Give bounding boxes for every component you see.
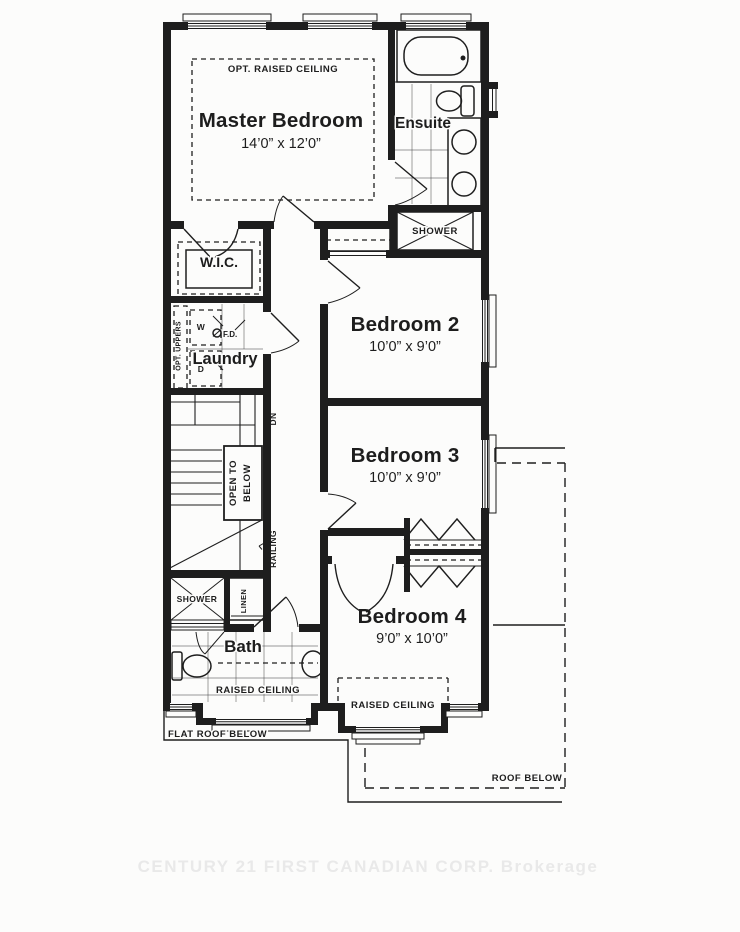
label-bedroom-4-dims: 9’0” x 10’0” [376, 631, 448, 647]
bathtub [397, 30, 481, 82]
label-washer: W [197, 322, 206, 332]
bath-toilet [172, 652, 211, 680]
label-bath-shower: SHOWER [177, 594, 218, 604]
ensuite-fixtures [395, 30, 481, 250]
label-dn: DN [268, 412, 278, 425]
label-master-bedroom: Master Bedroom [199, 109, 364, 132]
bed2-closet [326, 228, 390, 256]
label-bath-raised-ceiling: RAISED CEILING [216, 685, 300, 696]
laundry-fixtures [174, 304, 263, 388]
label-bedroom-4: Bedroom 4 [358, 605, 467, 628]
floor-plan-page: OPT. RAISED CEILING Master Bedroom 14’0”… [0, 0, 740, 932]
washer [190, 310, 221, 345]
labels: OPT. RAISED CEILING Master Bedroom 14’0”… [138, 64, 599, 876]
laundry-door [271, 313, 299, 353]
ensuite-tile-grid [395, 84, 448, 204]
closet-bifold-bed3 [404, 519, 481, 545]
closet-bifold-bed4 [404, 560, 481, 587]
label-railing: RAILING [268, 530, 278, 568]
ensuite-vanity [448, 118, 481, 206]
floor-plan-drawing: OPT. RAISED CEILING Master Bedroom 14’0”… [0, 0, 740, 932]
stair-diagonal [168, 520, 262, 569]
label-opt-raised-ceiling: OPT. RAISED CEILING [228, 64, 338, 75]
label-bedroom-3-dims: 10’0” x 9’0” [369, 470, 441, 486]
bedroom3-door [328, 494, 356, 529]
ensuite-door [395, 162, 427, 205]
ensuite-toilet [437, 86, 475, 116]
bedroom2-door [328, 261, 360, 303]
bath-door [254, 597, 298, 627]
label-bedroom-3: Bedroom 3 [351, 444, 460, 467]
watermark: CENTURY 21 FIRST CANADIAN CORP. Brokerag… [138, 857, 599, 876]
label-opt-uppers: OPT. UPPERS [176, 321, 183, 371]
label-floor-drain: F.D. [223, 330, 237, 339]
label-ensuite-shower: SHOWER [412, 226, 458, 237]
label-ensuite: Ensuite [395, 115, 451, 132]
laundry-counter-lines [188, 304, 263, 388]
floor-drain-symbol [213, 329, 221, 337]
label-master-dims: 14’0” x 12’0” [241, 136, 321, 152]
label-bedroom-2-dims: 10’0” x 9’0” [369, 339, 441, 355]
label-bath: Bath [224, 637, 262, 656]
label-open-to-below-2: BELOW [242, 464, 253, 502]
label-bedroom4-raised-ceiling: RAISED CEILING [351, 700, 435, 711]
bath-shower [171, 578, 224, 630]
label-wic: W.I.C. [200, 254, 238, 270]
label-flat-roof-below: FLAT ROOF BELOW [168, 729, 267, 740]
label-open-to-below-1: OPEN TO [228, 460, 239, 506]
bath-shower-door [196, 632, 224, 654]
label-roof-below: ROOF BELOW [492, 773, 562, 784]
label-linen: LINEN [239, 589, 248, 614]
label-dryer: D [198, 364, 205, 374]
label-bedroom-2: Bedroom 2 [351, 313, 460, 336]
